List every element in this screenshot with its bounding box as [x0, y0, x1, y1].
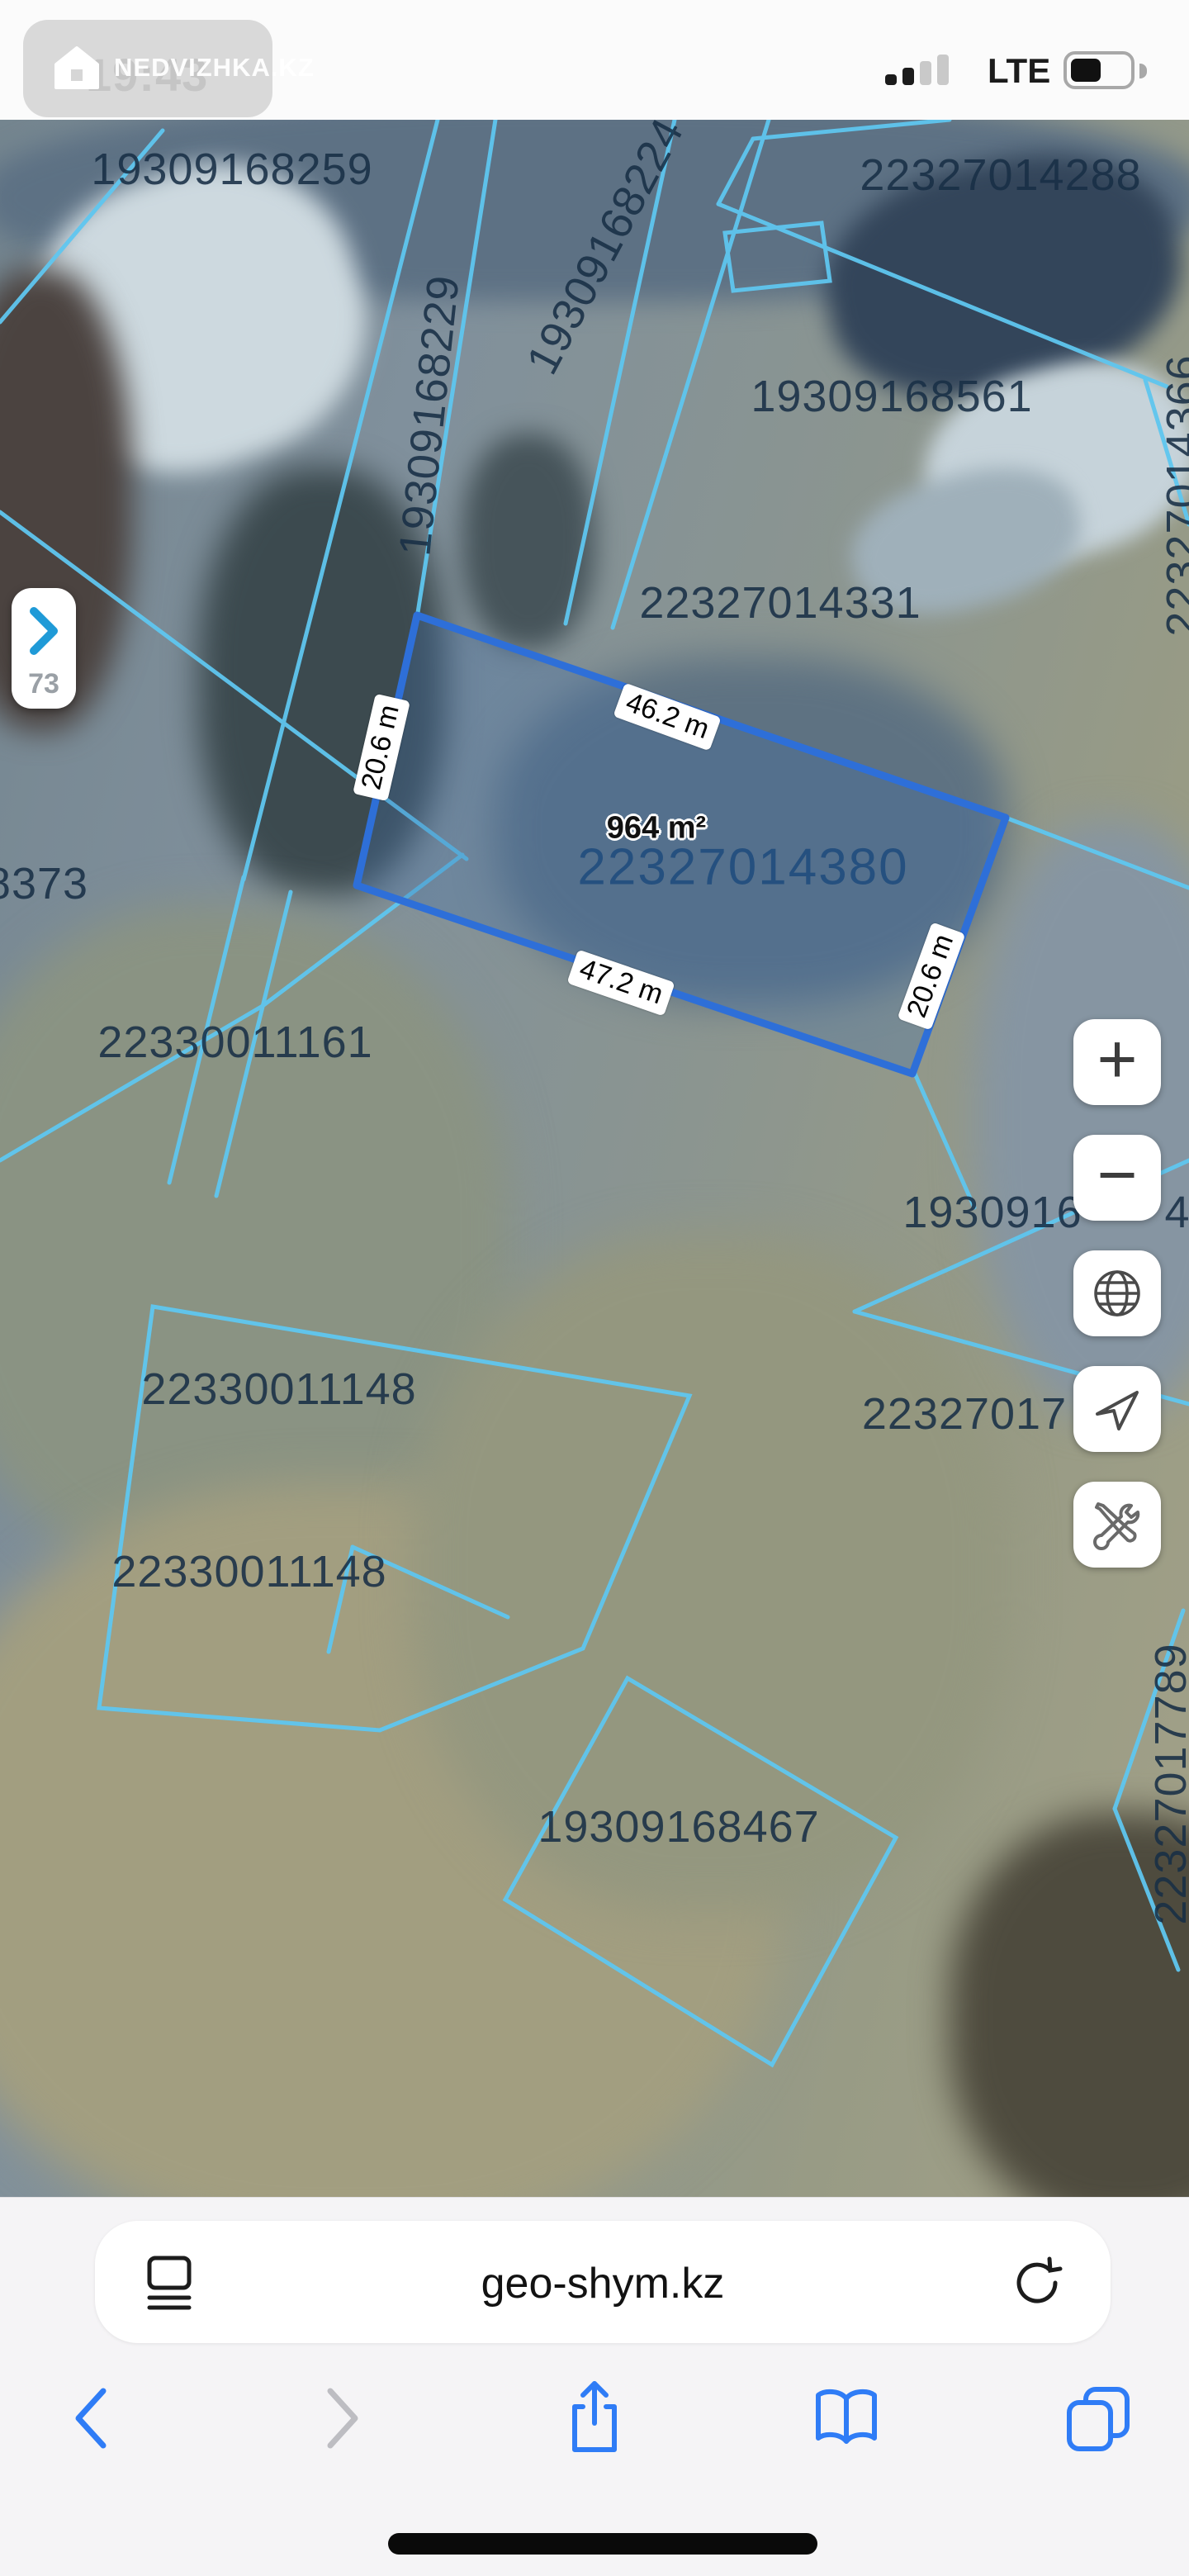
- navigation-arrow-icon: [1091, 1383, 1144, 1435]
- zoom-in-button[interactable]: +: [1073, 1019, 1161, 1105]
- tabs-button[interactable]: [1061, 2381, 1135, 2455]
- parcel-label-fragment[interactable]: 1930916: [902, 1187, 1082, 1238]
- wrench-screwdriver-icon: [1090, 1497, 1144, 1552]
- stacked-squares-icon: [1064, 2384, 1132, 2452]
- reload-icon[interactable]: [1010, 2256, 1064, 2310]
- parcel-boundaries-layer: [0, 120, 1189, 2197]
- forward-button[interactable]: [306, 2381, 380, 2455]
- plus-icon: +: [1097, 1024, 1137, 1093]
- minus-icon: −: [1097, 1140, 1137, 1209]
- parcel-label[interactable]: 22327017789: [1145, 1643, 1189, 1924]
- cadastral-map[interactable]: 19309168259 19309168224 19309168229 2232…: [0, 120, 1189, 2197]
- parcel-label[interactable]: 19309168467: [538, 1801, 819, 1853]
- network-type-label: LTE: [988, 51, 1050, 91]
- house-icon: [53, 45, 101, 93]
- chevron-left-icon: [72, 2386, 110, 2450]
- parcel-label[interactable]: 22327014288: [860, 149, 1141, 201]
- back-button[interactable]: [54, 2381, 128, 2455]
- parcel-label[interactable]: 22330011148: [141, 1364, 416, 1415]
- parcel-label[interactable]: 22327014366: [1157, 354, 1189, 636]
- battery-icon: [1063, 51, 1135, 89]
- battery-nub: [1139, 64, 1147, 78]
- parcel-label[interactable]: 8373: [0, 858, 88, 909]
- signal-strength-icon: [885, 0, 984, 120]
- parcel-label[interactable]: 19309168259: [91, 144, 372, 195]
- home-indicator[interactable]: [388, 2533, 817, 2555]
- watermark-text: NEDVIZHKA.KZ: [114, 53, 315, 83]
- share-icon: [565, 2380, 624, 2456]
- parcel-label[interactable]: 22330011148: [111, 1546, 386, 1597]
- address-bar[interactable]: geo-shym.kz: [95, 2221, 1111, 2343]
- bookmarks-button[interactable]: [809, 2381, 883, 2455]
- watermark-badge: NEDVIZHKA.KZ: [23, 20, 272, 117]
- selected-parcel-id[interactable]: 22327014380: [577, 838, 908, 897]
- share-button[interactable]: [557, 2381, 632, 2455]
- status-bar: 19:43 NEDVIZHKA.KZ LTE: [0, 0, 1189, 120]
- panel-toggle-label: 73: [12, 668, 76, 700]
- url-text[interactable]: geo-shym.kz: [95, 2259, 1111, 2308]
- parcel-label[interactable]: 19309168561: [751, 371, 1032, 422]
- locate-button[interactable]: [1073, 1366, 1161, 1452]
- tools-button[interactable]: [1073, 1482, 1161, 1568]
- panel-toggle-button[interactable]: 73: [12, 588, 76, 709]
- parcel-label[interactable]: 22327014331: [639, 577, 921, 629]
- zoom-out-button[interactable]: −: [1073, 1135, 1161, 1221]
- layers-globe-button[interactable]: [1073, 1250, 1161, 1336]
- parcel-label-fragment[interactable]: 22327017: [862, 1388, 1067, 1440]
- safari-bottom-bar: geo-shym.kz: [0, 2197, 1189, 2576]
- parcel-label[interactable]: 22330011161: [97, 1017, 372, 1068]
- iphone-screenshot: 19:43 NEDVIZHKA.KZ LTE: [0, 0, 1189, 2576]
- globe-icon: [1091, 1267, 1144, 1320]
- chevron-right-icon: [26, 606, 62, 656]
- parcel-label-fragment[interactable]: 4: [1164, 1187, 1189, 1238]
- open-book-icon: [812, 2387, 881, 2450]
- chevron-right-icon: [324, 2386, 362, 2450]
